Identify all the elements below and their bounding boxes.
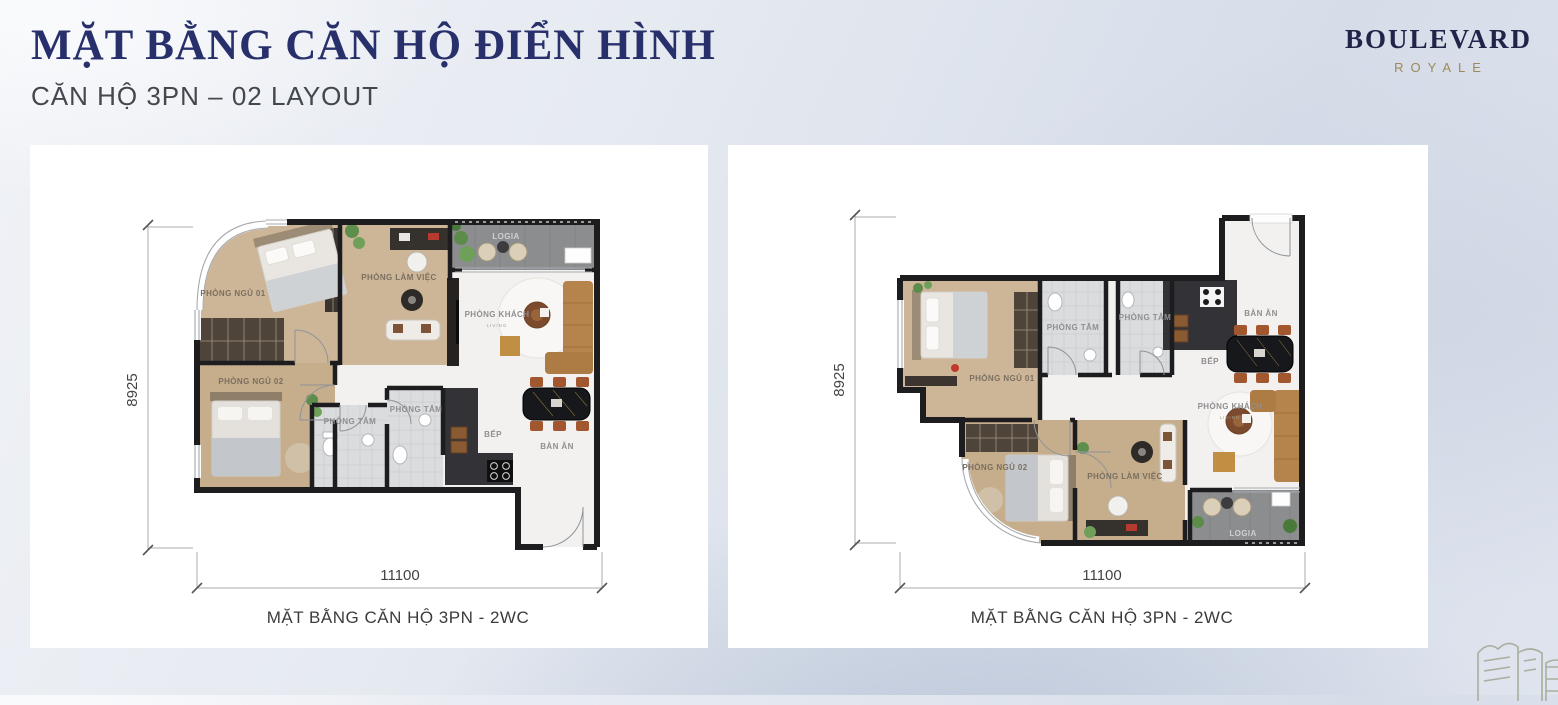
plan-caption-right: MẶT BẰNG CĂN HỘ 3PN - 2WC (971, 608, 1234, 627)
loveseat (386, 320, 440, 340)
room-label-bedroom2: PHÒNG NGỦ 02 (218, 377, 283, 386)
plan-caption-left: MẶT BẰNG CĂN HỘ 3PN - 2WC (267, 608, 530, 627)
room-label-living-sub: LIVING (1220, 415, 1241, 420)
brochure-slide: { "header": { "title": "MẶT BẰNG CĂN HỘ … (0, 0, 1558, 695)
room-label-dining: BÀN ĂN (1244, 309, 1278, 318)
floor-plan-right: PHÒNG NGỦ 01 PHÒNG NGỦ 02 PHÒNG LÀM VIỆC… (728, 145, 1428, 648)
room-label-kitchen: BẾP (1201, 356, 1219, 366)
floor-plan-card-left: PHÒNG NGỦ 01 PHÒNG NGỦ 02 PHÒNG LÀM VIỆC… (30, 145, 708, 648)
room-label-work: PHÒNG LÀM VIỆC (1087, 472, 1162, 481)
room-label-living-sub: LIVING (487, 323, 508, 328)
room-label-work: PHÒNG LÀM VIỆC (361, 273, 436, 282)
room-label-bath2: PHÒNG TẮM (390, 405, 443, 414)
room-label-bath2: PHÒNG TẮM (1119, 313, 1172, 322)
dim-height-value: 8925 (124, 373, 141, 406)
floor-plan-card-right: PHÒNG NGỦ 01 PHÒNG NGỦ 02 PHÒNG LÀM VIỆC… (728, 145, 1428, 648)
dim-height-value: 8925 (831, 363, 848, 396)
room-label-living: PHÒNG KHÁCH (465, 310, 530, 319)
room-label-bedroom1: PHÒNG NGỦ 01 (200, 289, 265, 298)
slide-header: MẶT BẰNG CĂN HỘ ĐIỂN HÌNH CĂN HỘ 3PN – 0… (31, 22, 716, 112)
dimension-height: 8925 (831, 210, 896, 550)
brand-logo: BOULEVARD ROYALE (1345, 24, 1530, 75)
dim-width-value: 11100 (1082, 567, 1122, 584)
dim-width-value: 11100 (380, 567, 420, 584)
dimension-width: 11100 (192, 552, 607, 593)
floor-plan-left: PHÒNG NGỦ 01 PHÒNG NGỦ 02 PHÒNG LÀM VIỆC… (30, 145, 708, 648)
dining-set (523, 377, 590, 431)
room-label-bedroom1: PHÒNG NGỦ 01 (969, 374, 1034, 383)
room-label-bath1: PHÒNG TẮM (324, 417, 377, 426)
page-title: MẶT BẰNG CĂN HỘ ĐIỂN HÌNH (31, 22, 716, 69)
room-label-bedroom2: PHÒNG NGỦ 02 (962, 463, 1027, 472)
room-label-kitchen: BẾP (484, 429, 502, 439)
brand-logo-text: BOULEVARD (1345, 24, 1530, 55)
room-label-dining: BÀN ĂN (540, 442, 574, 451)
room-label-living: PHÒNG KHÁCH (1198, 402, 1263, 411)
dining-set (1227, 325, 1293, 383)
dimension-height: 8925 (124, 220, 193, 555)
room-label-logia: LOGIA (492, 232, 519, 241)
building-line-icon (1450, 627, 1558, 705)
brand-logo-subtext: ROYALE (1345, 60, 1530, 75)
room-label-logia: LOGIA (1229, 529, 1256, 538)
room-label-bath1: PHÒNG TẮM (1047, 323, 1100, 332)
dimension-width: 11100 (895, 552, 1310, 593)
page-subtitle: CĂN HỘ 3PN – 02 LAYOUT (31, 81, 716, 112)
